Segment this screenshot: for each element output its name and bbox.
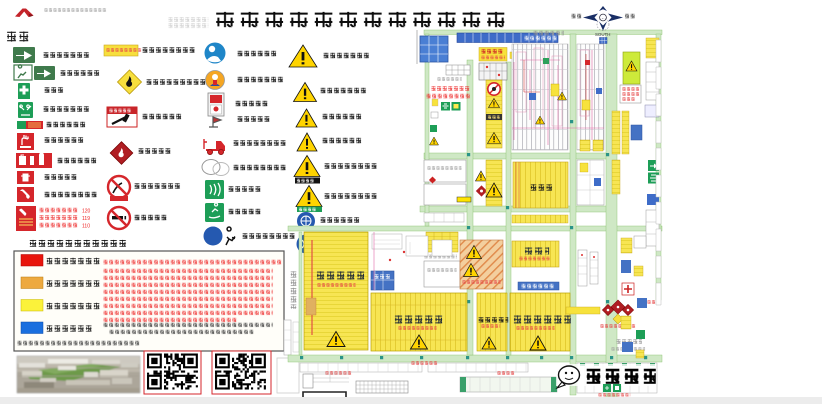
svg-text:SOUTH: SOUTH: [595, 32, 610, 37]
svg-text:119: 119: [82, 216, 90, 222]
svg-text:110: 110: [82, 223, 90, 229]
svg-text:120: 120: [82, 208, 91, 214]
